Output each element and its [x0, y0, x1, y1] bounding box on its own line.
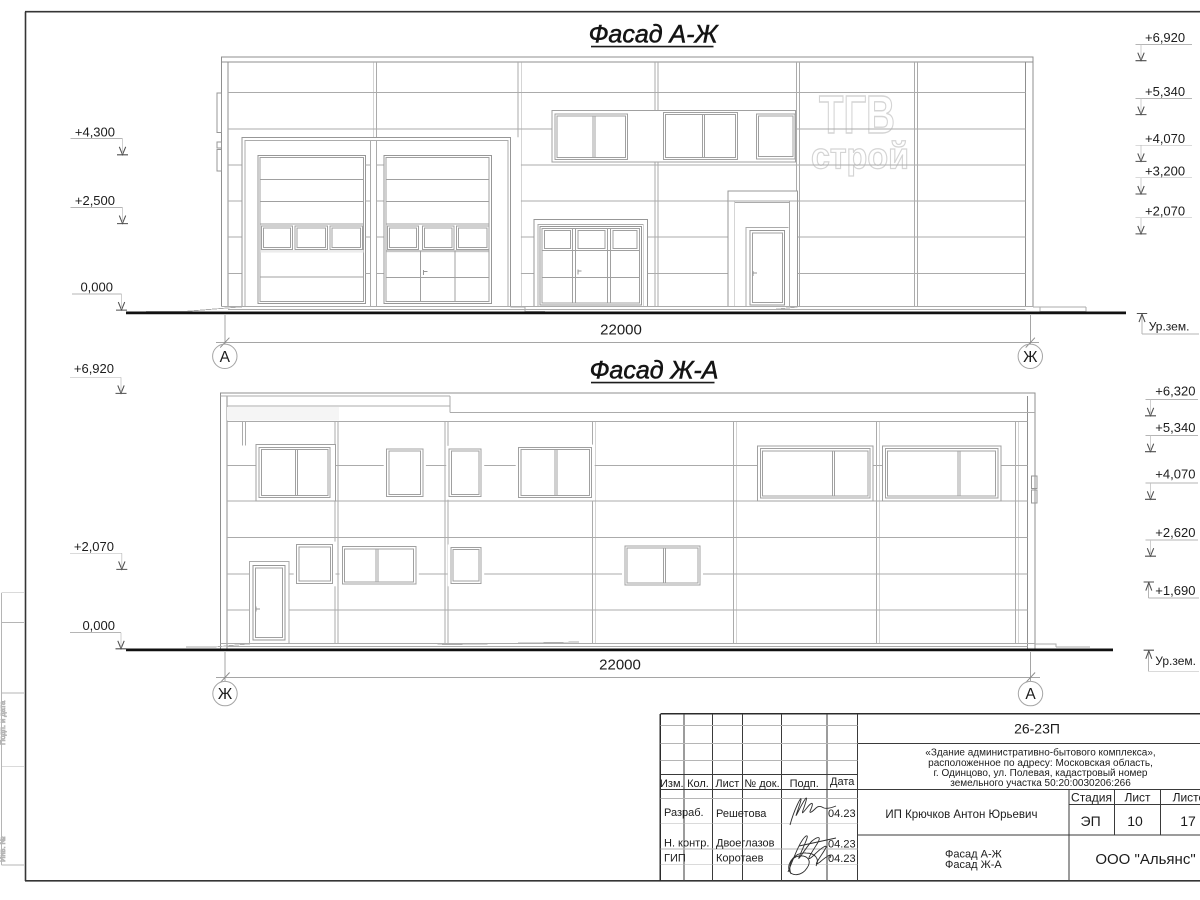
svg-text:строй: строй — [811, 135, 909, 177]
svg-text:Подп. и дата: Подп. и дата — [0, 700, 7, 745]
svg-text:+4,070: +4,070 — [1145, 131, 1185, 146]
svg-text:+4,300: +4,300 — [75, 124, 115, 139]
svg-text:Н. контр.: Н. контр. — [664, 838, 709, 850]
svg-text:Подп.: Подп. — [790, 778, 819, 790]
svg-text:ЭП: ЭП — [1081, 813, 1101, 829]
svg-text:+2,500: +2,500 — [75, 193, 115, 208]
svg-text:земельного участка 50:20:00302: земельного участка 50:20:0030206:266 — [950, 778, 1131, 789]
svg-text:+1,690: +1,690 — [1155, 583, 1195, 598]
svg-text:Изм.: Изм. — [660, 778, 684, 790]
svg-text:+2,070: +2,070 — [74, 539, 114, 554]
svg-text:+6,920: +6,920 — [74, 361, 114, 376]
svg-text:+5,340: +5,340 — [1155, 420, 1195, 435]
svg-text:26-23П: 26-23П — [1014, 721, 1060, 737]
svg-text:Ур.зем.: Ур.зем. — [1155, 654, 1196, 668]
svg-text:0,000: 0,000 — [80, 280, 113, 295]
svg-text:Фасад Ж-А: Фасад Ж-А — [590, 357, 719, 385]
svg-text:+4,070: +4,070 — [1155, 467, 1195, 482]
svg-text:+3,200: +3,200 — [1145, 163, 1185, 178]
svg-text:04.23: 04.23 — [828, 853, 856, 865]
svg-text:Ж: Ж — [1023, 349, 1038, 366]
svg-text:ООО "Альянс": ООО "Альянс" — [1095, 851, 1195, 868]
svg-text:22000: 22000 — [599, 657, 641, 674]
svg-text:Ур.зем.: Ур.зем. — [1149, 320, 1190, 334]
svg-text:10: 10 — [1127, 813, 1143, 829]
svg-text:Дата: Дата — [830, 776, 855, 788]
svg-text:Лист: Лист — [1124, 791, 1151, 805]
svg-text:Фасад Ж-А: Фасад Ж-А — [945, 859, 1002, 871]
svg-text:0,000: 0,000 — [82, 618, 115, 633]
svg-text:04.23: 04.23 — [828, 839, 856, 851]
svg-text:Листов: Листов — [1173, 791, 1200, 805]
svg-text:Решетова: Решетова — [716, 808, 767, 820]
svg-text:№ док.: № док. — [744, 778, 779, 790]
svg-text:+5,340: +5,340 — [1145, 84, 1185, 99]
svg-text:А: А — [220, 349, 231, 366]
svg-text:Коротаев: Коротаев — [716, 852, 764, 864]
svg-text:Инв. №: Инв. № — [0, 836, 7, 862]
svg-text:22000: 22000 — [600, 322, 642, 339]
svg-text:Стадия: Стадия — [1071, 791, 1112, 805]
svg-text:Кол.: Кол. — [687, 778, 709, 790]
svg-text:+2,070: +2,070 — [1145, 203, 1185, 218]
svg-text:Двоеглазов: Двоеглазов — [716, 838, 775, 850]
svg-text:Лист: Лист — [715, 778, 739, 790]
svg-text:Разраб.: Разраб. — [664, 807, 704, 819]
svg-text:Ж: Ж — [218, 686, 233, 703]
svg-text:17: 17 — [1180, 813, 1196, 829]
svg-text:Фасад А-Ж: Фасад А-Ж — [589, 21, 720, 49]
svg-text:+6,320: +6,320 — [1155, 384, 1195, 399]
svg-text:А: А — [1025, 686, 1036, 703]
svg-text:ИП Крючков Антон Юрьевич: ИП Крючков Антон Юрьевич — [885, 809, 1037, 821]
svg-text:+2,620: +2,620 — [1155, 525, 1195, 540]
svg-text:04.23: 04.23 — [828, 808, 856, 820]
svg-text:+6,920: +6,920 — [1145, 30, 1185, 45]
svg-text:ГИП: ГИП — [664, 852, 686, 864]
